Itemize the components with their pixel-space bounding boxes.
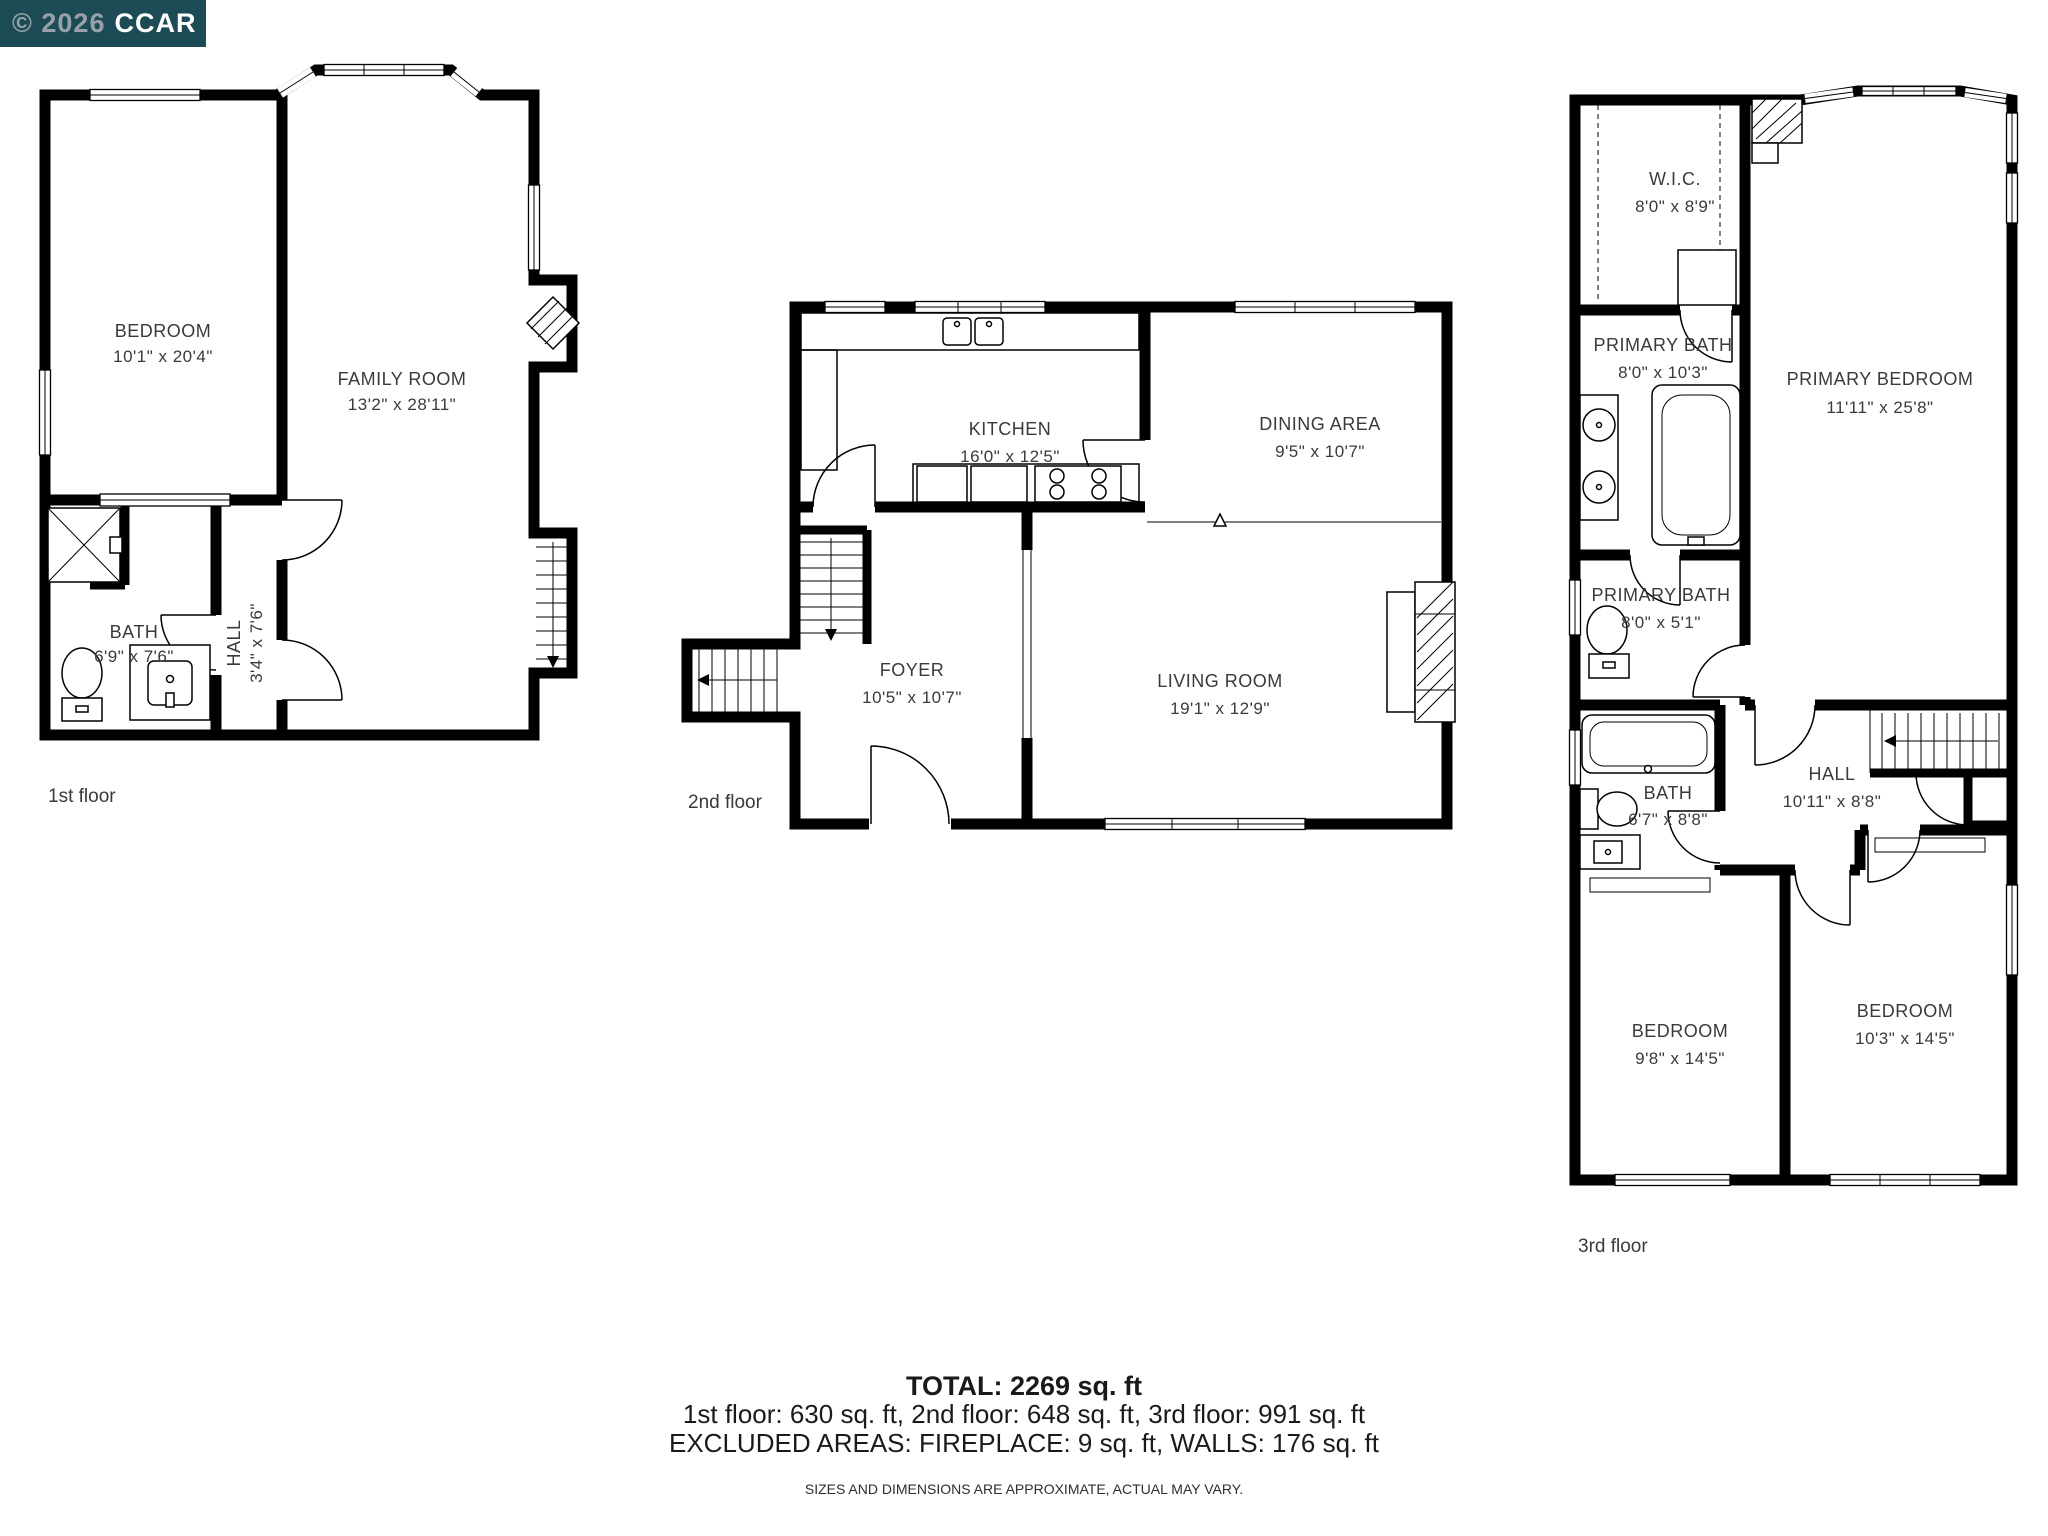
total-area: TOTAL: 2269 sq. ft — [0, 1372, 2048, 1400]
floor-breakdown: 1st floor: 630 sq. ft, 2nd floor: 648 sq… — [0, 1400, 2048, 1429]
room-label-kitchen: KITCHEN 16'0" x 12'5" — [960, 419, 1060, 466]
windows — [40, 65, 540, 507]
svg-text:BEDROOM: BEDROOM — [1857, 1001, 1954, 1021]
watermark-copyright: © 2026 — [12, 8, 105, 39]
room-label-bedroom-1: BEDROOM 9'8" x 14'5" — [1632, 1021, 1729, 1068]
room-label-dining-area: DINING AREA 9'5" x 10'7" — [1259, 414, 1381, 461]
svg-text:9'8" x 14'5": 9'8" x 14'5" — [1635, 1049, 1725, 1068]
svg-text:13'2" x 28'11": 13'2" x 28'11" — [348, 395, 456, 414]
room-label-family-room: FAMILY ROOM 13'2" x 28'11" — [338, 369, 467, 414]
svg-text:LIVING ROOM: LIVING ROOM — [1157, 671, 1283, 691]
svg-text:PRIMARY BEDROOM: PRIMARY BEDROOM — [1787, 369, 1974, 389]
svg-text:8'0" x 10'3": 8'0" x 10'3" — [1618, 363, 1708, 382]
room-label-bedroom: BEDROOM 10'1" x 20'4" — [113, 321, 213, 366]
windows — [825, 302, 1415, 830]
room-label-primary-bedroom: PRIMARY BEDROOM 11'11" x 25'8" — [1787, 369, 1974, 417]
svg-text:FOYER: FOYER — [880, 660, 945, 680]
floor-plan-1st: BEDROOM 10'1" x 20'4" FAMILY ROOM 13'2" … — [30, 55, 590, 755]
svg-text:PRIMARY BATH: PRIMARY BATH — [1593, 335, 1732, 355]
room-label-hall: HALL 3'4" x 7'6" — [224, 603, 266, 683]
svg-text:10'11" x 8'8": 10'11" x 8'8" — [1783, 792, 1881, 811]
floor-plan-page: © 2026 CCAR — [0, 0, 2048, 1536]
svg-text:W.I.C.: W.I.C. — [1649, 169, 1701, 189]
fireplace — [1387, 582, 1455, 722]
cased-opening — [1023, 550, 1031, 738]
entry-stairs — [697, 648, 777, 713]
svg-text:KITCHEN: KITCHEN — [969, 419, 1052, 439]
svg-text:19'1" x 12'9": 19'1" x 12'9" — [1170, 699, 1270, 718]
floor-plan-3rd: W.I.C. 8'0" x 8'9" PRIMARY BATH 8'0" x 1… — [1560, 85, 2040, 1195]
room-label-hall: HALL 10'11" x 8'8" — [1783, 764, 1881, 811]
svg-text:11'11" x 25'8": 11'11" x 25'8" — [1826, 398, 1933, 417]
shower — [48, 508, 122, 582]
floor-plan-2nd: KITCHEN 16'0" x 12'5" DINING AREA 9'5" x… — [675, 292, 1470, 832]
svg-text:HALL: HALL — [224, 619, 244, 666]
svg-text:3'4" x 7'6": 3'4" x 7'6" — [247, 603, 266, 683]
stairs — [799, 538, 863, 641]
floor-label-3rd: 3rd floor — [1578, 1236, 1648, 1258]
svg-text:10'1" x 20'4": 10'1" x 20'4" — [113, 347, 213, 366]
svg-text:BEDROOM: BEDROOM — [115, 321, 212, 341]
bathtub — [1652, 385, 1740, 545]
svg-text:16'0" x 12'5": 16'0" x 12'5" — [960, 447, 1060, 466]
room-label-living-room: LIVING ROOM 19'1" x 12'9" — [1157, 671, 1283, 718]
area-summary: TOTAL: 2269 sq. ft 1st floor: 630 sq. ft… — [0, 1372, 2048, 1497]
bathtub-small — [1582, 715, 1715, 773]
watermark: © 2026 CCAR — [0, 0, 206, 47]
room-label-wic: W.I.C. 8'0" x 8'9" — [1635, 169, 1715, 216]
svg-text:6'9" x 7'6": 6'9" x 7'6" — [94, 647, 174, 666]
svg-text:BATH: BATH — [1644, 783, 1693, 803]
svg-text:HALL: HALL — [1808, 764, 1855, 784]
step-marker — [1214, 514, 1226, 526]
fireplace-chimney — [1752, 99, 1802, 163]
svg-text:6'7" x 8'8": 6'7" x 8'8" — [1628, 810, 1708, 829]
watermark-brand: CCAR — [114, 8, 196, 39]
svg-text:BEDROOM: BEDROOM — [1632, 1021, 1729, 1041]
interior-walls — [795, 307, 1145, 824]
floor-label-2nd: 2nd floor — [688, 792, 762, 814]
svg-text:8'0" x 8'9": 8'0" x 8'9" — [1635, 197, 1715, 216]
stairs — [536, 542, 570, 668]
svg-text:PRIMARY BATH: PRIMARY BATH — [1591, 585, 1730, 605]
room-label-bath: BATH 6'7" x 8'8" — [1628, 783, 1708, 829]
double-sink-vanity — [1580, 395, 1618, 520]
excluded-areas: EXCLUDED AREAS: FIREPLACE: 9 sq. ft, WAL… — [0, 1429, 2048, 1458]
room-label-bedroom-2: BEDROOM 10'3" x 14'5" — [1855, 1001, 1955, 1048]
stove — [1035, 466, 1121, 502]
room-label-foyer: FOYER 10'5" x 10'7" — [862, 660, 962, 707]
svg-text:10'3" x 14'5": 10'3" x 14'5" — [1855, 1029, 1955, 1048]
floor-label-1st: 1st floor — [48, 786, 116, 808]
svg-text:DINING AREA: DINING AREA — [1259, 414, 1381, 434]
svg-text:9'5" x 10'7": 9'5" x 10'7" — [1275, 442, 1365, 461]
svg-text:10'5" x 10'7": 10'5" x 10'7" — [862, 688, 962, 707]
svg-text:8'0" x 5'1": 8'0" x 5'1" — [1621, 613, 1701, 632]
stairs — [1870, 710, 1999, 773]
sink-vanity-2 — [1580, 835, 1640, 869]
svg-text:BATH: BATH — [110, 622, 159, 642]
disclaimer: SIZES AND DIMENSIONS ARE APPROXIMATE, AC… — [0, 1481, 2048, 1497]
svg-text:FAMILY ROOM: FAMILY ROOM — [338, 369, 467, 389]
